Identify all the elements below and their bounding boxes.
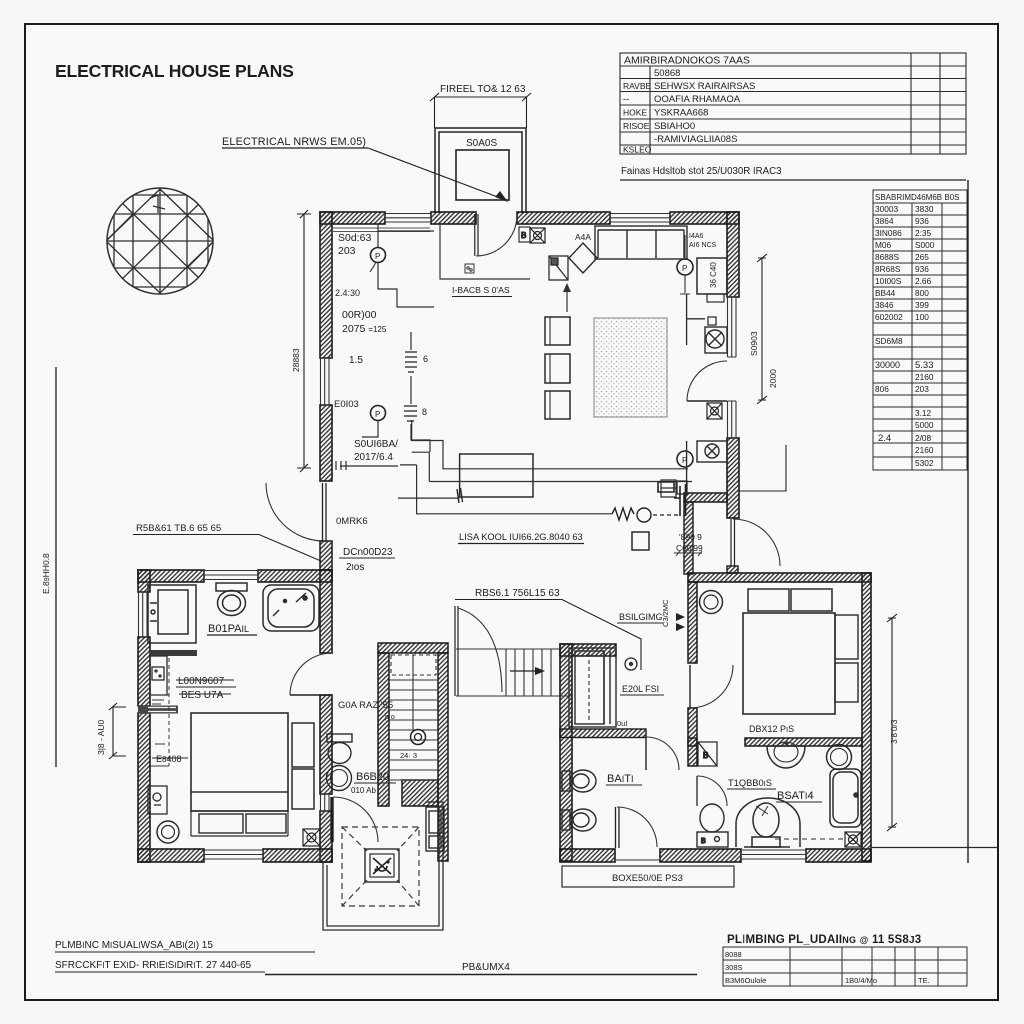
svg-text:S0903: S0903 xyxy=(749,331,759,356)
svg-text:203: 203 xyxy=(915,384,929,394)
svg-text:B3M6Oulole: B3M6Oulole xyxy=(725,976,766,985)
svg-text:8088: 8088 xyxy=(725,950,742,959)
svg-text:ELECTRICAL NRWS EM.05): ELECTRICAL NRWS EM.05) xyxy=(222,136,366,148)
svg-text:2.66: 2.66 xyxy=(915,276,932,286)
svg-text:3864: 3864 xyxy=(875,216,894,226)
svg-text:E0I03: E0I03 xyxy=(334,399,359,410)
svg-text:B: B xyxy=(701,838,706,845)
svg-text:KSLEO: KSLEO xyxy=(623,145,652,155)
svg-text:YSKRAA668: YSKRAA668 xyxy=(654,108,708,119)
svg-text:Fainas Hdsltob stot 25/U030R I: Fainas Hdsltob stot 25/U030R IRAC3 xyxy=(621,166,781,177)
svg-text:602002: 602002 xyxy=(875,312,903,322)
svg-text:1B0/4/Mo: 1B0/4/Mo xyxy=(845,976,877,985)
svg-text:399: 399 xyxy=(915,300,929,310)
svg-text:36 C40: 36 C40 xyxy=(709,262,718,288)
svg-text:DBX12 PIS: DBX12 PIS xyxy=(749,724,794,734)
svg-text:OOAFIA RHAMAOA: OOAFIA RHAMAOA xyxy=(654,94,741,105)
svg-text:FIREEL TO& 12 63: FIREEL TO& 12 63 xyxy=(440,84,526,95)
svg-text:BSILGIMG: BSILGIMG xyxy=(619,612,663,622)
svg-text:AI6 NCS: AI6 NCS xyxy=(689,242,717,249)
svg-text:2000: 2000 xyxy=(768,369,778,388)
svg-text:2160: 2160 xyxy=(915,372,934,382)
svg-text:SD6M8: SD6M8 xyxy=(875,336,903,346)
svg-text:ELECTRICAL HOUSE PLANS: ELECTRICAL HOUSE PLANS xyxy=(55,61,294,81)
svg-text:TE.: TE. xyxy=(918,976,930,985)
svg-text:BB44: BB44 xyxy=(875,288,896,298)
svg-text:HOKE: HOKE xyxy=(623,108,647,118)
svg-text:B01PAIL: B01PAIL xyxy=(208,623,249,635)
svg-text:1.5: 1.5 xyxy=(349,355,363,366)
svg-text:24· 3: 24· 3 xyxy=(400,751,417,760)
svg-text:R5B&61 TB.6 65 65: R5B&61 TB.6 65 65 xyxy=(136,523,221,534)
svg-text:8688S: 8688S xyxy=(875,252,899,262)
svg-text:S0d:63: S0d:63 xyxy=(338,232,371,244)
svg-text:2Ios: 2Ios xyxy=(346,562,364,573)
svg-text:T1QBB0IS: T1QBB0IS xyxy=(728,778,772,788)
svg-text:3830: 3830 xyxy=(915,204,934,214)
svg-text:BES U7A: BES U7A xyxy=(181,690,224,701)
svg-text:LISA KOOL IUI66.2G.8040 63: LISA KOOL IUI66.2G.8040 63 xyxy=(459,532,583,542)
svg-text:RISOE: RISOE xyxy=(623,121,650,131)
svg-text:30000: 30000 xyxy=(875,360,900,370)
svg-text:SEHWSX RAIRAIRSAS: SEHWSX RAIRAIRSAS xyxy=(654,81,755,92)
svg-text:5000: 5000 xyxy=(915,420,934,430)
svg-text:10I00S: 10I00S xyxy=(875,276,902,286)
svg-text:C3/2MC: C3/2MC xyxy=(661,599,670,627)
svg-text:P: P xyxy=(682,264,687,273)
svg-text:RAVBE: RAVBE xyxy=(623,81,652,91)
svg-text:2017/6.4: 2017/6.4 xyxy=(354,452,393,463)
svg-text:S0UI6BA/: S0UI6BA/ xyxy=(354,439,398,450)
svg-text:BOXE50/0E PS3: BOXE50/0E PS3 xyxy=(612,872,683,883)
svg-text:936: 936 xyxy=(915,216,929,226)
svg-text:B: B xyxy=(521,231,526,240)
svg-text:SBABRIMD46M6B B0S: SBABRIMD46M6B B0S xyxy=(875,193,959,202)
svg-text:S000: S000 xyxy=(915,240,935,250)
svg-text:3'8'0/3: 3'8'0/3 xyxy=(889,719,899,744)
svg-text:2.4: 2.4 xyxy=(878,433,891,444)
svg-text:E20L FSI: E20L FSI xyxy=(622,684,659,694)
svg-text:2160: 2160 xyxy=(915,445,934,455)
svg-text:203: 203 xyxy=(338,245,356,257)
svg-text:AMIRBIRADNOKOS 7AAS: AMIRBIRADNOKOS 7AAS xyxy=(624,55,750,67)
svg-text:SFRCCKFIT EXID- RRIEISIDIRIT.: SFRCCKFIT EXID- RRIEISIDIRIT. 27 440-65 xyxy=(55,960,252,971)
svg-text:2075 =125: 2075 =125 xyxy=(342,323,387,335)
svg-text:265: 265 xyxy=(915,252,929,262)
svg-text:936: 936 xyxy=(915,264,929,274)
svg-text:SBIAHO0: SBIAHO0 xyxy=(654,121,695,132)
svg-text:0MRK6: 0MRK6 xyxy=(336,516,368,527)
svg-text:30003: 30003 xyxy=(875,204,898,214)
svg-text:5.33: 5.33 xyxy=(915,360,934,371)
svg-text:PLMBINC MISUALIWSA_ABI(2I) 15: PLMBINC MISUALIWSA_ABI(2I) 15 xyxy=(55,940,213,951)
svg-text:100: 100 xyxy=(915,312,929,322)
svg-text:'890 9: '890 9 xyxy=(679,532,702,542)
svg-text:A4A: A4A xyxy=(575,232,591,242)
svg-text:E8408: E8408 xyxy=(156,754,182,764)
svg-text:50868: 50868 xyxy=(654,68,680,79)
svg-text:DCn00D23: DCn00D23 xyxy=(343,547,393,558)
svg-text:PB&UMX4: PB&UMX4 xyxy=(462,962,510,973)
svg-text:010 Ab: 010 Ab xyxy=(351,786,376,795)
svg-text:8: 8 xyxy=(422,407,427,417)
svg-text:2.4:30: 2.4:30 xyxy=(335,288,360,298)
svg-text:--: -- xyxy=(623,94,629,105)
svg-text:PLIMBING PL_UDAIING @ 11 5S8J3: PLIMBING PL_UDAIING @ 11 5S8J3 xyxy=(727,934,921,946)
svg-text:806: 806 xyxy=(875,384,889,394)
svg-text:28883: 28883 xyxy=(291,348,301,372)
svg-text:RBS6.1 756L15 63: RBS6.1 756L15 63 xyxy=(475,588,560,599)
svg-text:5302: 5302 xyxy=(915,458,934,468)
svg-text:3.12: 3.12 xyxy=(915,408,932,418)
svg-text:P: P xyxy=(375,252,380,261)
svg-text:P: P xyxy=(375,410,380,419)
svg-text:S0A0S: S0A0S xyxy=(466,138,497,149)
svg-text:L00N9607: L00N9607 xyxy=(178,676,225,687)
svg-text:I4A6: I4A6 xyxy=(689,233,704,240)
svg-text:00R)00: 00R)00 xyxy=(342,309,377,321)
svg-text:I-BACB S 0'AS: I-BACB S 0'AS xyxy=(452,285,510,295)
svg-text:800: 800 xyxy=(915,288,929,298)
svg-text:3846: 3846 xyxy=(875,300,894,310)
svg-text:308S: 308S xyxy=(725,963,743,972)
svg-text:8R68S: 8R68S xyxy=(875,264,901,274)
svg-text:E.89HH0.8: E.89HH0.8 xyxy=(41,553,51,594)
svg-text:B: B xyxy=(703,751,708,760)
svg-text:3IN086: 3IN086 xyxy=(875,228,902,238)
svg-text:6: 6 xyxy=(423,354,428,364)
svg-text:3|8 - AU0: 3|8 - AU0 xyxy=(96,719,106,755)
svg-text:-RAMIVIAGLIIA08S: -RAMIVIAGLIIA08S xyxy=(654,134,737,145)
svg-text:M06: M06 xyxy=(875,240,892,250)
svg-text:BAITI: BAITI xyxy=(607,773,633,785)
svg-text:0uI: 0uI xyxy=(617,719,627,728)
svg-text:2/08: 2/08 xyxy=(915,433,932,443)
svg-text:2:35: 2:35 xyxy=(915,228,932,238)
